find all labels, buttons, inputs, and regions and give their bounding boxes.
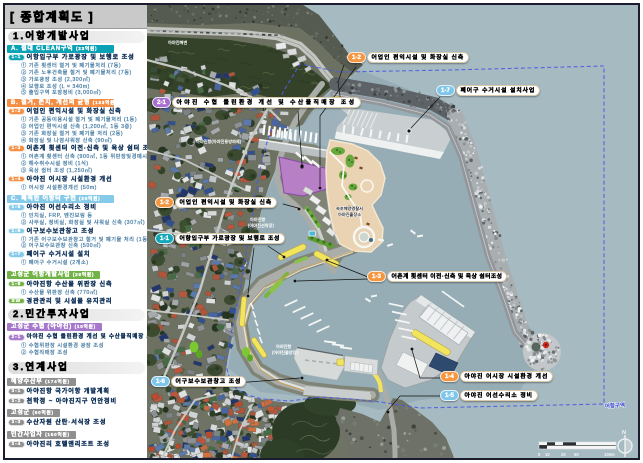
svg-text:아야진해변: 아야진해변	[168, 39, 187, 46]
svg-text:아야진항: 아야진항	[250, 216, 266, 223]
svg-text:N: N	[622, 430, 626, 436]
svg-text:아야진항: 아야진항	[276, 343, 292, 350]
svg-text:속초해양경찰서: 속초해양경찰서	[336, 205, 363, 212]
svg-text:(아야진물양장): (아야진물양장)	[272, 349, 299, 356]
svg-text:아야진출장소: 아야진출장소	[338, 211, 361, 218]
svg-text:20: 20	[561, 452, 566, 457]
svg-text:100m: 100m	[604, 452, 615, 457]
svg-text:(아야진선착장): (아야진선착장)	[248, 222, 275, 229]
svg-text:아야진항(아야진동방파제): 아야진항(아야진동방파제)	[196, 138, 242, 145]
svg-text:10: 10	[545, 452, 550, 457]
svg-text:50: 50	[574, 452, 579, 457]
